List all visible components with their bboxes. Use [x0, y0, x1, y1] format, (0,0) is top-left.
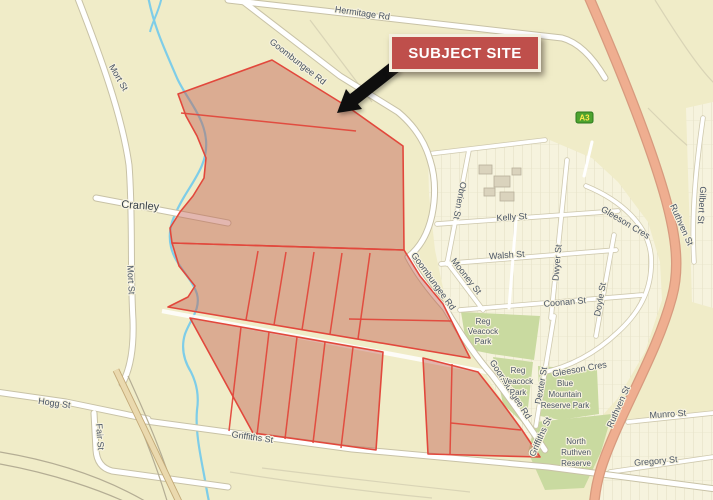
label-fair-st: Fair St [94, 423, 106, 451]
label-reg-veacock-1a: Reg [476, 317, 491, 326]
label-blue-mountain-c: Reserve Park [541, 401, 590, 410]
label-reg-veacock-2c: Park [510, 388, 527, 397]
subject-site-callout: SUBJECT SITE [389, 34, 541, 72]
map-canvas: A3 Hermitage Rd Goombungee Rd Goombungee… [0, 0, 713, 500]
label-blue-mountain-b: Mountain [549, 390, 582, 399]
label-reg-veacock-2a: Reg [511, 366, 526, 375]
label-blue-mountain-a: Blue [557, 379, 574, 388]
svg-text:A3: A3 [579, 114, 590, 123]
label-reg-veacock-2b: Veacock [503, 377, 534, 386]
label-north-ruthven-a: North [566, 437, 586, 446]
route-marker-a3: A3 [576, 112, 593, 123]
label-north-ruthven-b: Ruthven [561, 448, 591, 457]
label-north-ruthven-c: Reserve [561, 459, 591, 468]
subject-site-callout-label: SUBJECT SITE [408, 45, 522, 62]
label-reg-veacock-1c: Park [475, 337, 492, 346]
label-mort-st-2: Mort St [125, 265, 137, 295]
label-reg-veacock-1b: Veacock [468, 327, 499, 336]
map-stage: A3 Hermitage Rd Goombungee Rd Goombungee… [0, 0, 713, 500]
